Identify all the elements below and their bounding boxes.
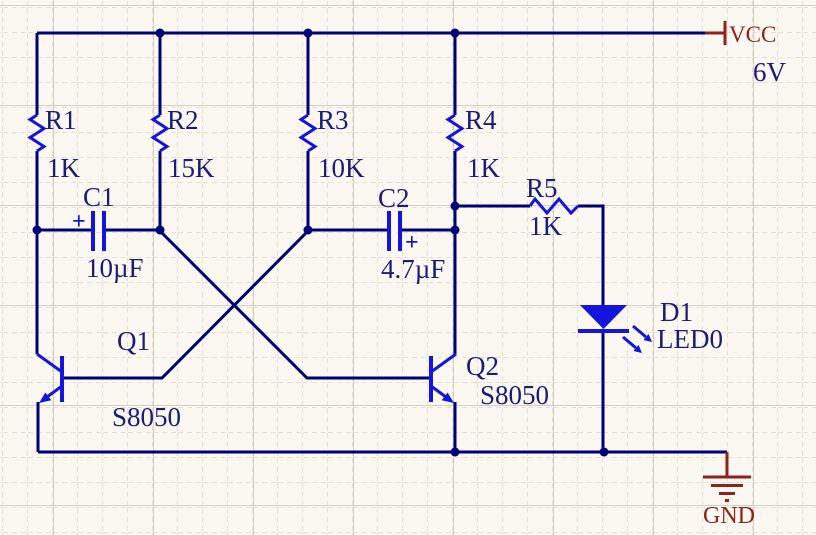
junction-dot xyxy=(33,226,42,235)
capacitor-C2-value-label[interactable]: 4.7µF xyxy=(381,254,445,284)
junction-dot xyxy=(304,29,313,38)
junction-dot xyxy=(451,202,460,211)
resistor-R1-ref-label[interactable]: R1 xyxy=(45,105,77,135)
transistor-Q2-ref-label[interactable]: Q2 xyxy=(466,351,499,381)
transistor-Q1-ref-label[interactable]: Q1 xyxy=(117,326,150,356)
junction-dot xyxy=(451,29,460,38)
capacitor-C1-polarity-plus: + xyxy=(72,209,86,235)
resistor-R1-value-label[interactable]: 1K xyxy=(47,153,81,183)
transistor-Q2-value-label[interactable]: S8050 xyxy=(480,380,549,410)
resistor-R3-ref-label[interactable]: R3 xyxy=(317,105,349,135)
resistor-R5-ref-label[interactable]: R5 xyxy=(526,173,558,203)
led-D1-value-label[interactable]: LED0 xyxy=(657,324,723,354)
transistor-Q1-value-label[interactable]: S8050 xyxy=(112,402,181,432)
junction-dot xyxy=(304,226,313,235)
capacitor-C1-value-label[interactable]: 10µF xyxy=(86,253,144,283)
resistor-R2-value-label[interactable]: 15K xyxy=(168,153,215,183)
schematic-canvas: R1 1K R2 15K R3 10K R4 1K R5 1K + C1 10µ… xyxy=(0,0,816,535)
vcc-voltage-label[interactable]: 6V xyxy=(753,57,787,87)
capacitor-C2-polarity-plus: + xyxy=(405,230,419,256)
resistor-R3-value-label[interactable]: 10K xyxy=(318,153,365,183)
led-D1-ref-label[interactable]: D1 xyxy=(660,297,693,327)
junction-dot xyxy=(156,29,165,38)
resistor-R5-value-label[interactable]: 1K xyxy=(529,211,563,241)
capacitor-C1-ref-label[interactable]: C1 xyxy=(83,182,115,212)
resistor-R4-ref-label[interactable]: R4 xyxy=(465,105,497,135)
junction-dot xyxy=(451,226,460,235)
gnd-label[interactable]: GND xyxy=(703,503,755,529)
junction-dot xyxy=(600,448,609,457)
resistor-R2-ref-label[interactable]: R2 xyxy=(167,105,199,135)
schematic-drawing: R1 1K R2 15K R3 10K R4 1K R5 1K + C1 10µ… xyxy=(0,0,816,535)
junction-dot xyxy=(156,226,165,235)
resistor-R4-value-label[interactable]: 1K xyxy=(467,153,501,183)
junction-dot xyxy=(451,448,460,457)
capacitor-C2-ref-label[interactable]: C2 xyxy=(378,183,410,213)
vcc-label[interactable]: VCC xyxy=(729,22,776,47)
